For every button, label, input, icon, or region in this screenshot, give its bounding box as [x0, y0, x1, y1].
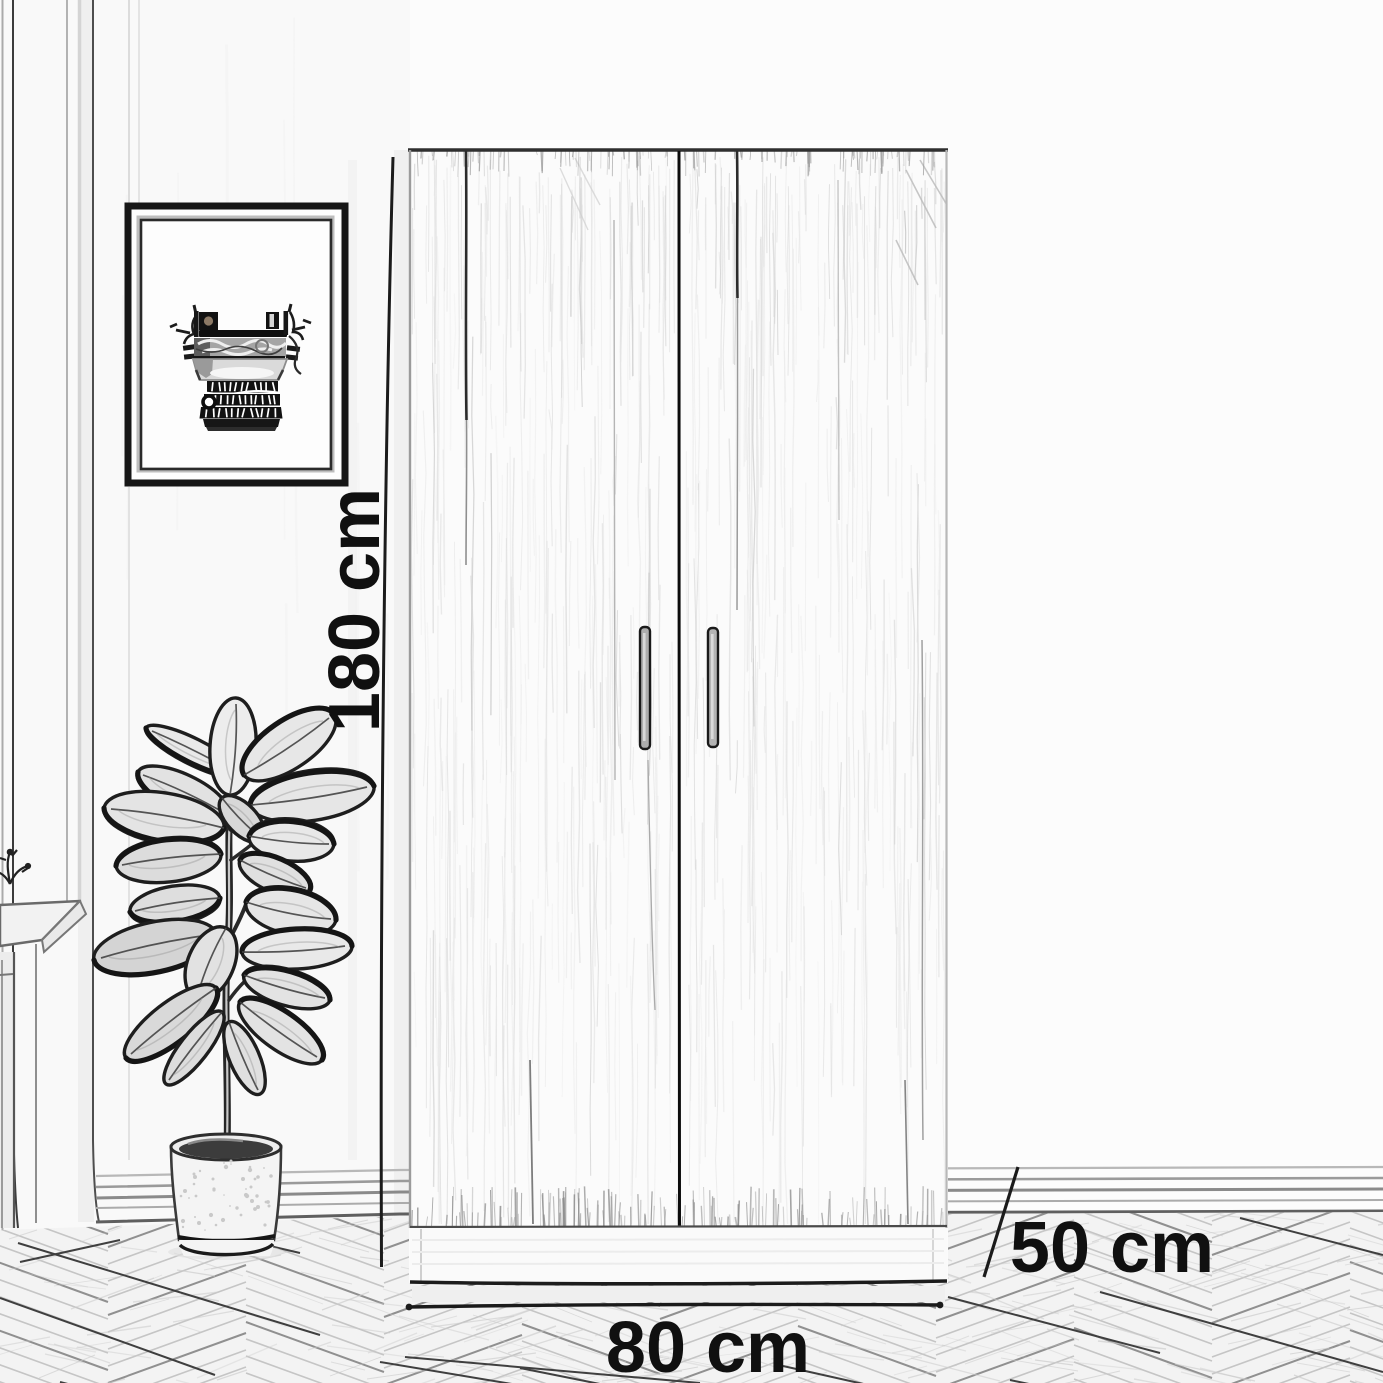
svg-text:50 cm: 50 cm: [1010, 1208, 1214, 1288]
svg-text:80 cm: 80 cm: [606, 1308, 810, 1383]
svg-text:180 cm: 180 cm: [315, 488, 395, 732]
